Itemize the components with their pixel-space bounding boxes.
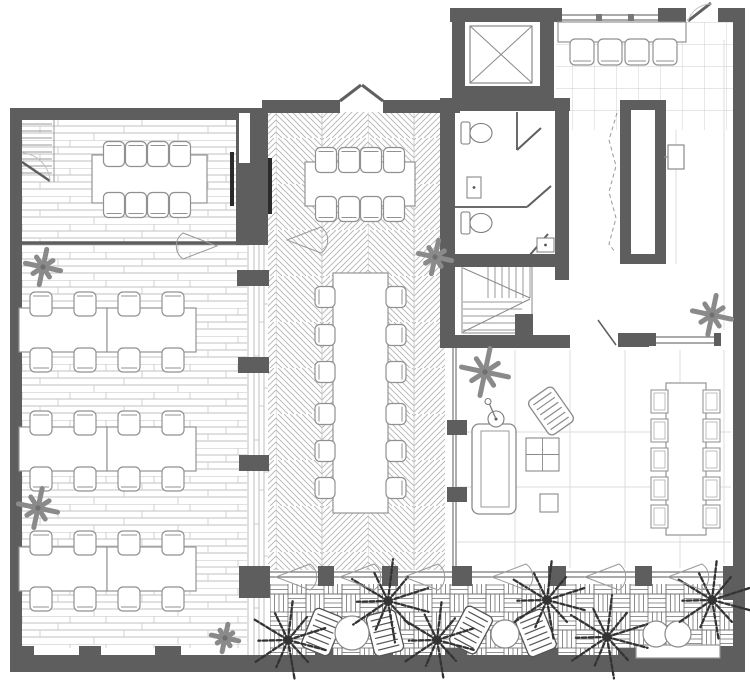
terrace-column: [635, 566, 652, 586]
stair-wall-stub: [515, 314, 533, 336]
communal-table: [333, 273, 388, 513]
pier-niche: [239, 113, 250, 163]
wc-door-leaf-1: [527, 186, 551, 207]
lounge-chair: [527, 385, 576, 437]
floor-plan: [0, 0, 750, 681]
main-double-door-leaf-left: [340, 85, 361, 101]
patches: [239, 113, 250, 163]
wc-wall-east: [555, 98, 569, 280]
sofa: [472, 424, 516, 514]
stair-wall-south: [440, 335, 570, 348]
dining-wall-north: [618, 333, 649, 347]
wall-pilaster: [155, 646, 181, 656]
wall-north-east-b: [658, 8, 686, 22]
island-folding-screen: [609, 113, 617, 252]
patches: [631, 110, 655, 254]
main-double-door-leaf-right: [362, 85, 383, 101]
side-table: [540, 494, 558, 512]
round-table: [491, 620, 519, 648]
floor-lamp: [485, 399, 504, 428]
potted-plant: [692, 295, 731, 334]
tables: [666, 383, 706, 535]
south-glazing-line: [270, 572, 733, 577]
lounge-column: [447, 487, 467, 502]
wc-wall-west: [440, 98, 455, 348]
wall-pilaster: [79, 646, 101, 656]
colonnade-pier-south: [239, 566, 270, 598]
colonnade-column: [237, 270, 269, 286]
lounge-column: [447, 420, 467, 435]
round-table: [335, 616, 369, 650]
coffee-table: [526, 438, 559, 471]
dining-chairs-east: [703, 390, 720, 528]
potted-plant: [462, 349, 509, 396]
sink: [537, 238, 554, 252]
tables: [333, 273, 388, 513]
north-window-band: [560, 15, 658, 20]
glazing-post-b: [714, 333, 721, 346]
wc-door-leaf-2: [517, 128, 541, 150]
wall-north-center-a: [262, 100, 340, 113]
wall-south: [10, 655, 745, 672]
colonnade-column: [239, 455, 269, 471]
wall-north-office: [10, 108, 238, 120]
colonnade-glass-east: [453, 348, 456, 566]
dining-door-leaf: [598, 320, 616, 345]
colonnade-column: [238, 357, 269, 373]
toilet: [461, 212, 492, 234]
conference-tv: [230, 152, 234, 206]
round-table: [665, 621, 691, 647]
meeting-tv: [268, 158, 272, 214]
toilet: [461, 122, 492, 144]
rear-door-leaf: [688, 3, 711, 21]
wc-wall-north: [440, 98, 570, 111]
dining-table: [666, 383, 706, 535]
island-counter-top: [631, 110, 655, 254]
kitchen-lounge-glazing: [656, 337, 714, 343]
dining-chairs-west: [651, 390, 668, 528]
island-side-unit: [668, 145, 684, 169]
glazing-post-a: [648, 333, 656, 346]
terrace-column: [452, 566, 472, 586]
floor-plan-canvas: [0, 0, 750, 681]
wall-pilaster: [20, 646, 34, 656]
wc-wall-south: [440, 254, 556, 267]
sink: [467, 177, 481, 198]
terrace-column: [318, 566, 334, 586]
